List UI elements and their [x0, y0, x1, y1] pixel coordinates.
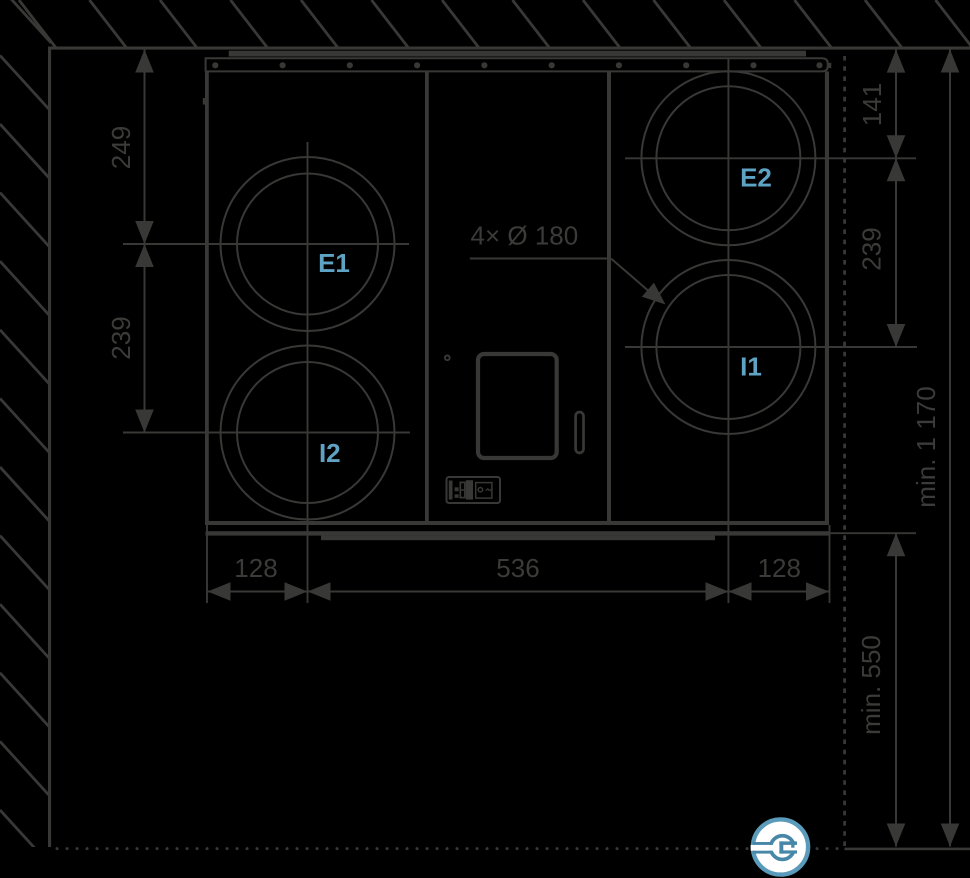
svg-text:128: 128 — [234, 553, 277, 583]
svg-text:141: 141 — [857, 83, 887, 126]
svg-text:min. 550: min. 550 — [856, 635, 886, 735]
svg-text:E2: E2 — [740, 162, 772, 192]
svg-text:E1: E1 — [318, 248, 350, 278]
svg-text:4× Ø 180: 4× Ø 180 — [471, 221, 579, 251]
svg-text:I1: I1 — [740, 351, 762, 381]
svg-text:I2: I2 — [319, 438, 341, 468]
svg-text:239: 239 — [106, 316, 136, 359]
svg-text:min. 1 170: min. 1 170 — [911, 386, 941, 507]
svg-text:249: 249 — [106, 126, 136, 169]
svg-text:239: 239 — [856, 227, 886, 270]
svg-text:128: 128 — [758, 553, 801, 583]
svg-text:536: 536 — [496, 553, 539, 583]
